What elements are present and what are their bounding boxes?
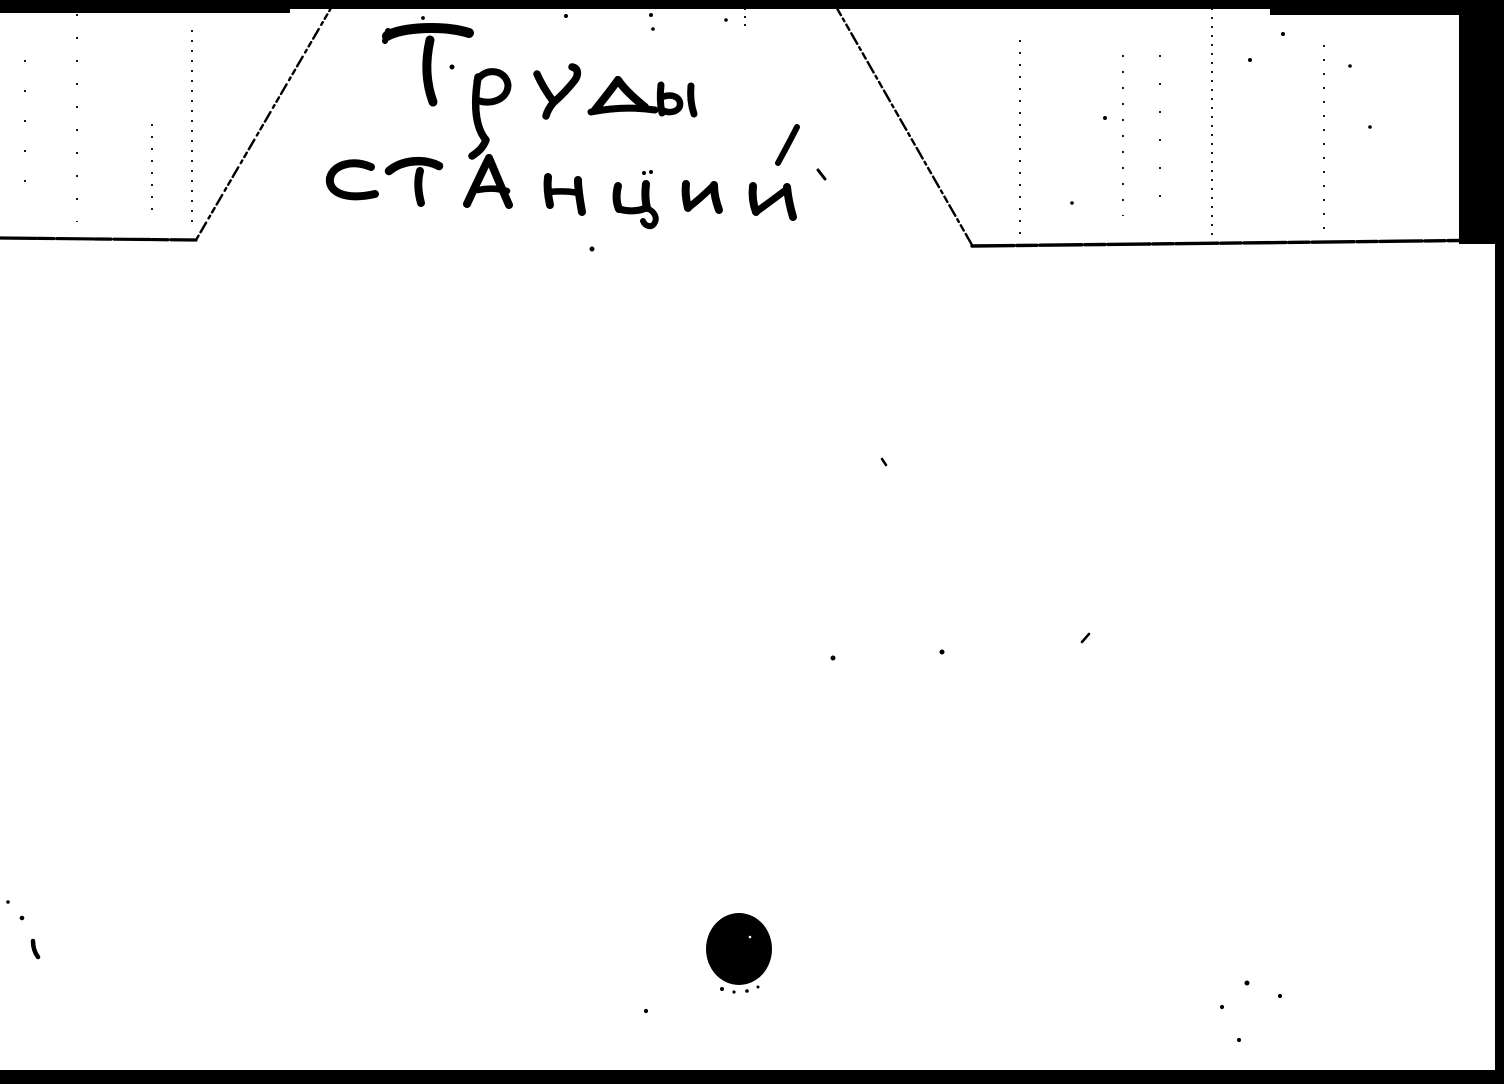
card-scan-image: Scanned handwritten library catalog divi… <box>0 0 1504 1084</box>
scan-border-top-left-thick <box>0 0 290 13</box>
card-top-edge-left <box>0 238 196 240</box>
scan-border-right-strip <box>1495 244 1504 1084</box>
scan-border-bottom <box>0 1070 1504 1084</box>
catalog-card-scan: Scanned handwritten library catalog divi… <box>0 0 1504 1084</box>
scan-border-right-block <box>1459 0 1504 244</box>
